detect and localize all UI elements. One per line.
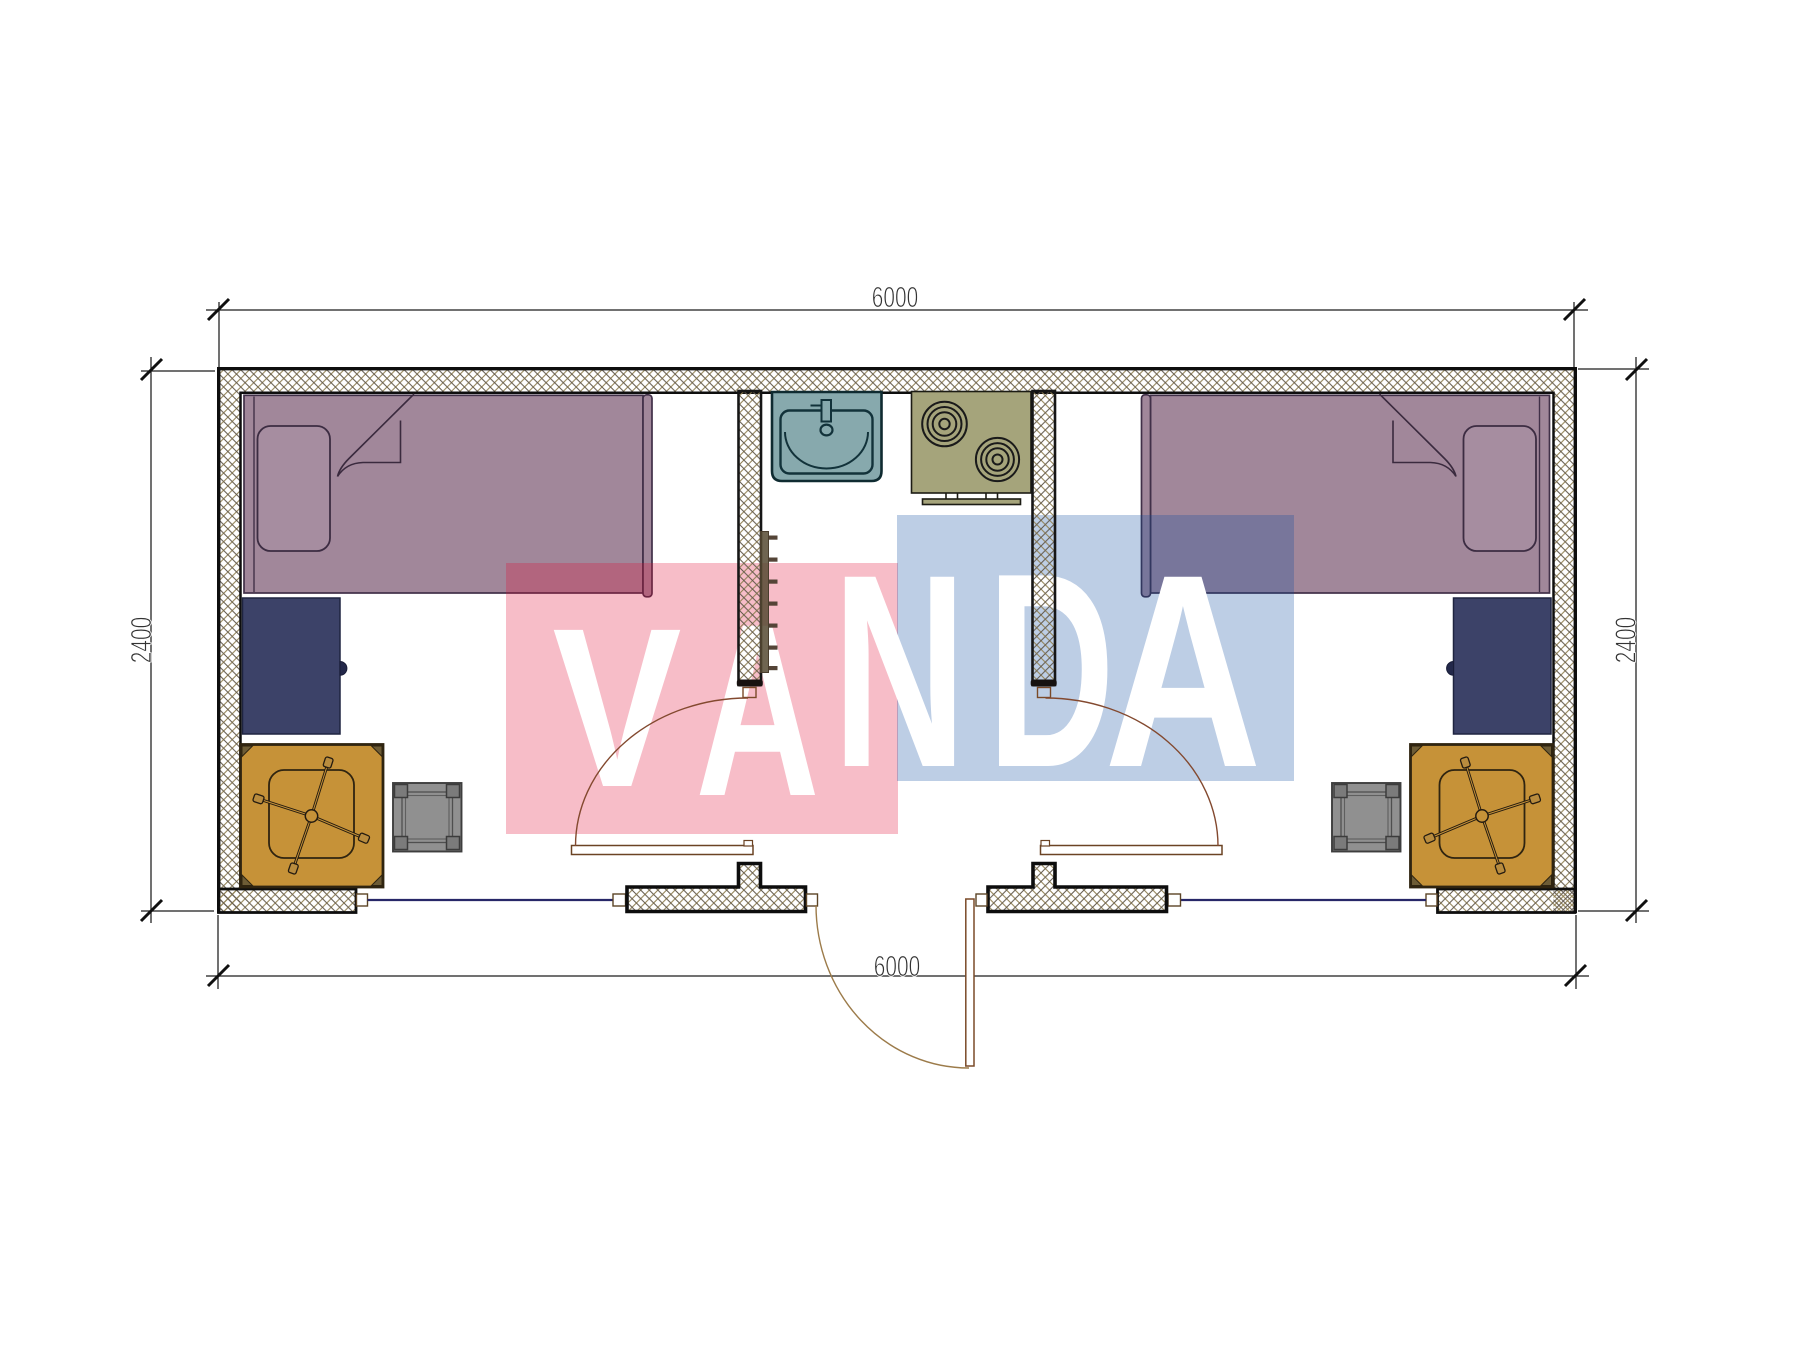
svg-text:6000: 6000 (872, 282, 918, 314)
svg-text:A: A (1104, 517, 1262, 825)
svg-text:N: N (832, 518, 966, 825)
svg-text:6000: 6000 (874, 951, 920, 983)
svg-text:V: V (552, 580, 681, 834)
svg-text:2400: 2400 (126, 617, 158, 663)
svg-text:2400: 2400 (1610, 617, 1642, 663)
